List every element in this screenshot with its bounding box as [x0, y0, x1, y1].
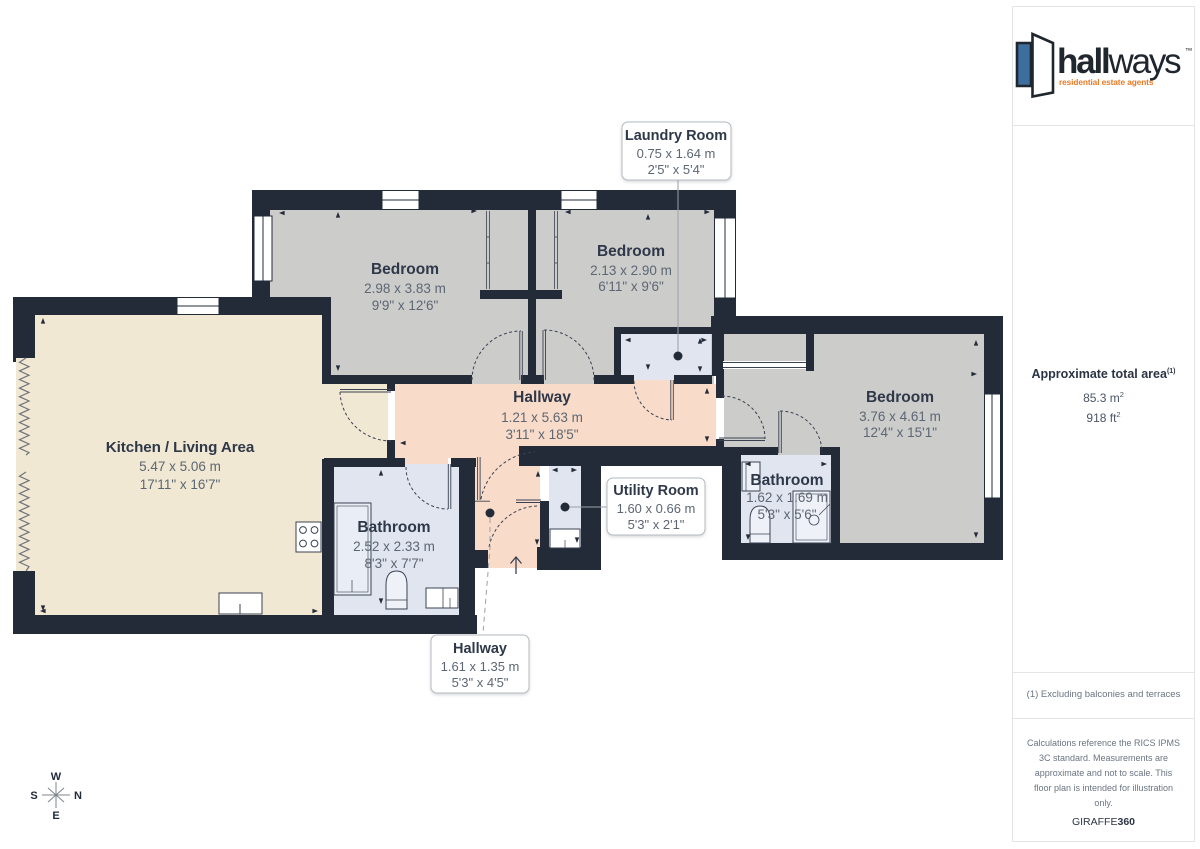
svg-text:9'9" x 12'6": 9'9" x 12'6" — [372, 298, 439, 313]
svg-text:™: ™ — [1185, 46, 1193, 55]
svg-text:Utility Room: Utility Room — [613, 483, 698, 499]
svg-text:Bathroom: Bathroom — [750, 472, 823, 489]
svg-text:Kitchen / Living Area: Kitchen / Living Area — [106, 439, 255, 456]
svg-text:Bedroom: Bedroom — [371, 261, 439, 278]
svg-text:5'3" x 5'6": 5'3" x 5'6" — [757, 507, 816, 522]
svg-text:hallways: hallways — [1057, 42, 1181, 81]
svg-text:0.75 x 1.64 m: 0.75 x 1.64 m — [637, 146, 716, 161]
svg-text:3.76 x 4.61 m: 3.76 x 4.61 m — [859, 409, 941, 424]
svg-text:12'4" x 15'1": 12'4" x 15'1" — [863, 425, 937, 440]
svg-text:residential estate agents: residential estate agents — [1059, 77, 1154, 87]
svg-text:S: S — [30, 790, 37, 802]
svg-text:Hallway: Hallway — [513, 389, 571, 406]
svg-text:Bathroom: Bathroom — [357, 519, 430, 536]
svg-text:2.52 x 2.33 m: 2.52 x 2.33 m — [353, 539, 435, 554]
svg-text:E: E — [52, 810, 59, 822]
svg-text:Laundry Room: Laundry Room — [625, 128, 727, 144]
svg-text:W: W — [51, 771, 62, 783]
svg-text:Bedroom: Bedroom — [597, 243, 665, 260]
svg-text:5.47 x 5.06 m: 5.47 x 5.06 m — [139, 459, 221, 474]
svg-text:Bedroom: Bedroom — [866, 389, 934, 406]
svg-text:Hallway: Hallway — [453, 641, 507, 657]
svg-text:2.13 x 2.90 m: 2.13 x 2.90 m — [590, 263, 672, 278]
svg-text:1.21 x 5.63 m: 1.21 x 5.63 m — [501, 410, 583, 425]
svg-text:2.98 x 3.83 m: 2.98 x 3.83 m — [364, 281, 446, 296]
svg-text:6'11" x 9'6": 6'11" x 9'6" — [598, 279, 664, 294]
svg-text:1.62 x 1.69 m: 1.62 x 1.69 m — [746, 490, 828, 505]
svg-text:17'11" x 16'7": 17'11" x 16'7" — [140, 477, 221, 492]
svg-text:5'3" x 2'1": 5'3" x 2'1" — [628, 517, 685, 532]
svg-text:N: N — [74, 790, 82, 802]
svg-text:2'5" x 5'4": 2'5" x 5'4" — [648, 162, 705, 177]
svg-text:3'11" x 18'5": 3'11" x 18'5" — [505, 427, 578, 442]
svg-text:8'3" x 7'7": 8'3" x 7'7" — [364, 556, 423, 571]
svg-text:5'3" x 4'5": 5'3" x 4'5" — [452, 675, 509, 690]
svg-text:1.60 x 0.66 m: 1.60 x 0.66 m — [617, 501, 696, 516]
svg-text:1.61 x 1.35 m: 1.61 x 1.35 m — [441, 659, 520, 674]
